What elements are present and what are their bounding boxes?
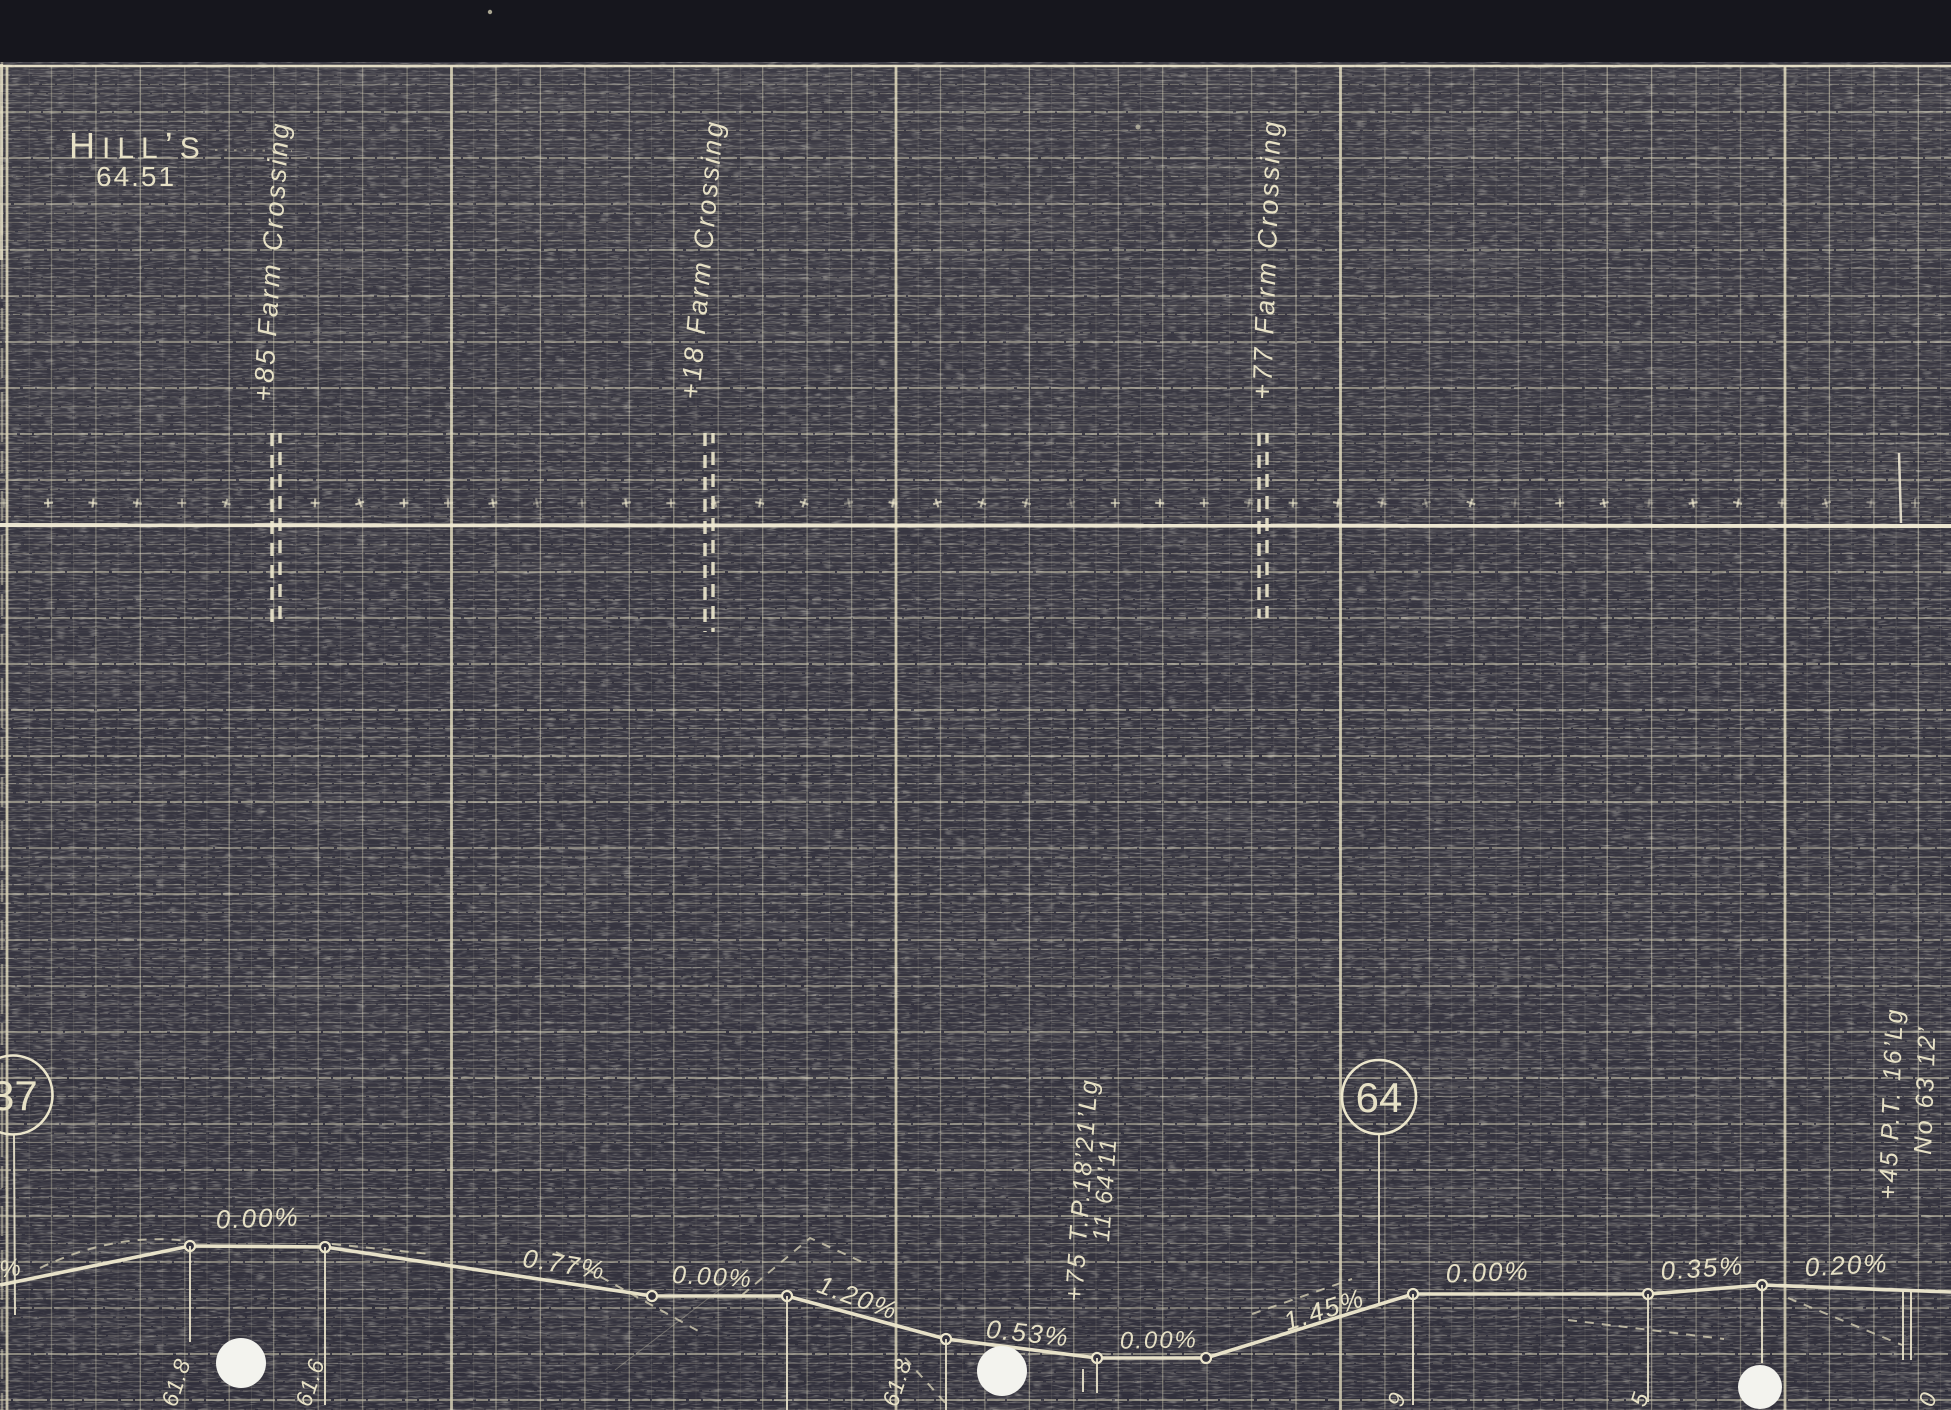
svg-text:HILL’S: HILL’S [69,125,207,166]
svg-text:0.20%: 0.20% [1804,1248,1889,1282]
svg-text:0.00%: 0.00% [671,1261,753,1293]
svg-text:0.00%: 0.00% [1445,1256,1530,1289]
svg-text:37: 37 [0,1072,38,1119]
svg-text:No 63 12’: No 63 12’ [1909,1025,1942,1155]
svg-text:64.51: 64.51 [96,161,176,192]
svg-text:0.35%: 0.35% [1660,1250,1746,1286]
svg-text:%: % [0,1254,24,1284]
svg-text:0.00%: 0.00% [215,1202,300,1235]
svg-text:64: 64 [1356,1074,1403,1121]
svg-text:0.00%: 0.00% [1120,1326,1199,1354]
